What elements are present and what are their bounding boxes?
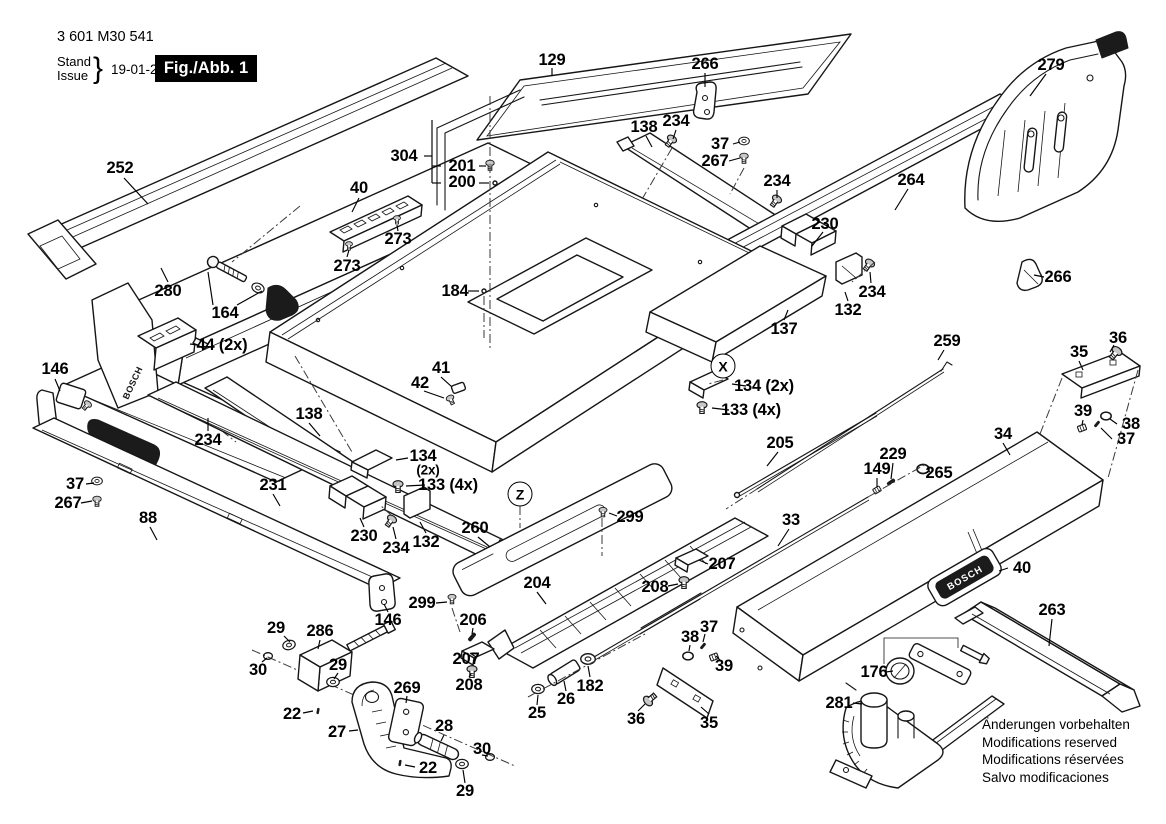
part-label-234-37: 234 (195, 432, 222, 449)
part-label-230-45: 230 (351, 528, 378, 545)
part-label-134-2x-32: 134 (2x) (734, 378, 794, 395)
part-label-266-12: 266 (692, 56, 719, 73)
part-label-234-14: 234 (663, 113, 690, 130)
stand-issue-label: Stand Issue (57, 55, 91, 83)
part-label-299-59: 299 (409, 595, 436, 612)
part-label-35-27: 35 (1070, 344, 1088, 361)
part-label-132-23: 132 (835, 302, 862, 319)
part-label-37-15: 37 (711, 136, 729, 153)
miter-gauge-281 (830, 683, 1004, 788)
part-label-29-67: 29 (329, 657, 347, 674)
part-label-234-22: 234 (859, 284, 886, 301)
plate-35-bottom (642, 642, 719, 718)
part-label-34-51: 34 (994, 426, 1012, 443)
part-label-205-50: 205 (767, 435, 794, 452)
part-label-263-85: 263 (1039, 602, 1066, 619)
part-label-267-16: 267 (702, 153, 729, 170)
part-label-286-65: 286 (307, 623, 334, 640)
part-label-26-76: 26 (557, 691, 575, 708)
part-label-27-69: 27 (328, 724, 346, 741)
part-label-129-11: 129 (539, 52, 566, 69)
part-label-208-57: 208 (642, 579, 669, 596)
part-label-234-17: 234 (764, 173, 791, 190)
figure-label: Fig./Abb. 1 (155, 55, 257, 82)
part-label-182-77: 182 (577, 678, 604, 695)
notice-line-de: Änderungen vorbehalten (982, 716, 1130, 734)
part-label-204-58: 204 (524, 575, 551, 592)
part-label-137-24: 137 (771, 321, 798, 338)
part-label-260-48: 260 (462, 520, 489, 537)
part-label-164-2: 164 (212, 305, 239, 322)
clamp-146-bottom (369, 574, 395, 611)
part-label-184-25: 184 (442, 283, 469, 300)
part-label-146-60: 146 (375, 612, 402, 629)
part-label-146-4: 146 (42, 361, 69, 378)
part-label-259-26: 259 (934, 333, 961, 350)
part-label-37-81: 37 (700, 619, 718, 636)
part-label-132-47: 132 (413, 534, 440, 551)
clamp-266-top (694, 82, 717, 119)
part-label-149-53: 149 (864, 461, 891, 478)
part-label-230-20: 230 (812, 216, 839, 233)
part-label-234-46: 234 (383, 540, 410, 557)
assembly-176 (884, 638, 990, 686)
stand-label: Stand (57, 55, 91, 69)
part-label-29-64: 29 (267, 620, 285, 637)
part-label-266-21: 266 (1045, 269, 1072, 286)
brace-glyph: } (93, 52, 103, 86)
notice-line-en: Modifications reserved (982, 734, 1130, 752)
part-label-264-18: 264 (898, 172, 925, 189)
part-label-273-6: 273 (385, 231, 412, 248)
notice-line-es: Salvo modificaciones (982, 769, 1130, 787)
exploded-parts-diagram: BOSCH (0, 0, 1166, 824)
part-label-37-31: 37 (1117, 431, 1135, 448)
part-label-30-72: 30 (473, 741, 491, 758)
part-label-207-62: 207 (453, 651, 480, 668)
part-label-280-1: 280 (155, 283, 182, 300)
view-marker-x: X (711, 354, 736, 379)
part-label-281-84: 281 (826, 695, 853, 712)
part-label-267-43: 267 (55, 495, 82, 512)
part-label-40-5: 40 (350, 180, 368, 197)
part-label-207-56: 207 (709, 556, 736, 573)
part-label-279-19: 279 (1038, 57, 1065, 74)
modification-notice: Änderungen vorbehalten Modifications res… (982, 716, 1130, 786)
part-label-38-80: 38 (681, 629, 699, 646)
part-label-39-82: 39 (715, 658, 733, 675)
part-label-36-78: 36 (627, 711, 645, 728)
part-label-42-35: 42 (411, 375, 429, 392)
part-label-36-28: 36 (1109, 330, 1127, 347)
part-label-138-13: 138 (631, 119, 658, 136)
part-label-2x-39: (2x) (416, 463, 439, 477)
part-label-206-61: 206 (460, 612, 487, 629)
part-label-37-42: 37 (66, 476, 84, 493)
part-label-29-74: 29 (456, 783, 474, 800)
part-label-176-83: 176 (861, 664, 888, 681)
part-label-33-55: 33 (782, 512, 800, 529)
part-label-133-4x-40: 133 (4x) (418, 477, 478, 494)
part-label-39-29: 39 (1074, 403, 1092, 420)
diagram-canvas: BOSCH (0, 0, 1166, 824)
part-label-88-44: 88 (139, 510, 157, 527)
notice-line-fr: Modifications réservées (982, 751, 1130, 769)
part-label-269-70: 269 (394, 680, 421, 697)
part-label-28-71: 28 (435, 718, 453, 735)
part-label-22-68: 22 (283, 706, 301, 723)
part-label-25-75: 25 (528, 705, 546, 722)
part-label-22-73: 22 (419, 760, 437, 777)
part-label-40-86: 40 (1013, 560, 1031, 577)
part-label-299-49: 299 (617, 509, 644, 526)
part-label-231-41: 231 (260, 477, 287, 494)
document-part-number: 3 601 M30 541 (57, 29, 154, 45)
part-label-252-0: 252 (107, 160, 134, 177)
issue-label: Issue (57, 69, 91, 83)
part-label-304-8: 304 (391, 148, 418, 165)
part-label-133-4x-33: 133 (4x) (721, 402, 781, 419)
part-label-265-54: 265 (926, 465, 953, 482)
part-label-41-34: 41 (432, 360, 450, 377)
part-label-35-79: 35 (700, 715, 718, 732)
part-label-273-7: 273 (334, 258, 361, 275)
part-label-138-36: 138 (296, 406, 323, 423)
part-label-208-63: 208 (456, 677, 483, 694)
part-label-44-2x-3: 44 (2x) (197, 337, 248, 354)
part-label-30-66: 30 (249, 662, 267, 679)
part-label-200-10: 200 (449, 174, 476, 191)
view-marker-z: Z (508, 482, 533, 507)
